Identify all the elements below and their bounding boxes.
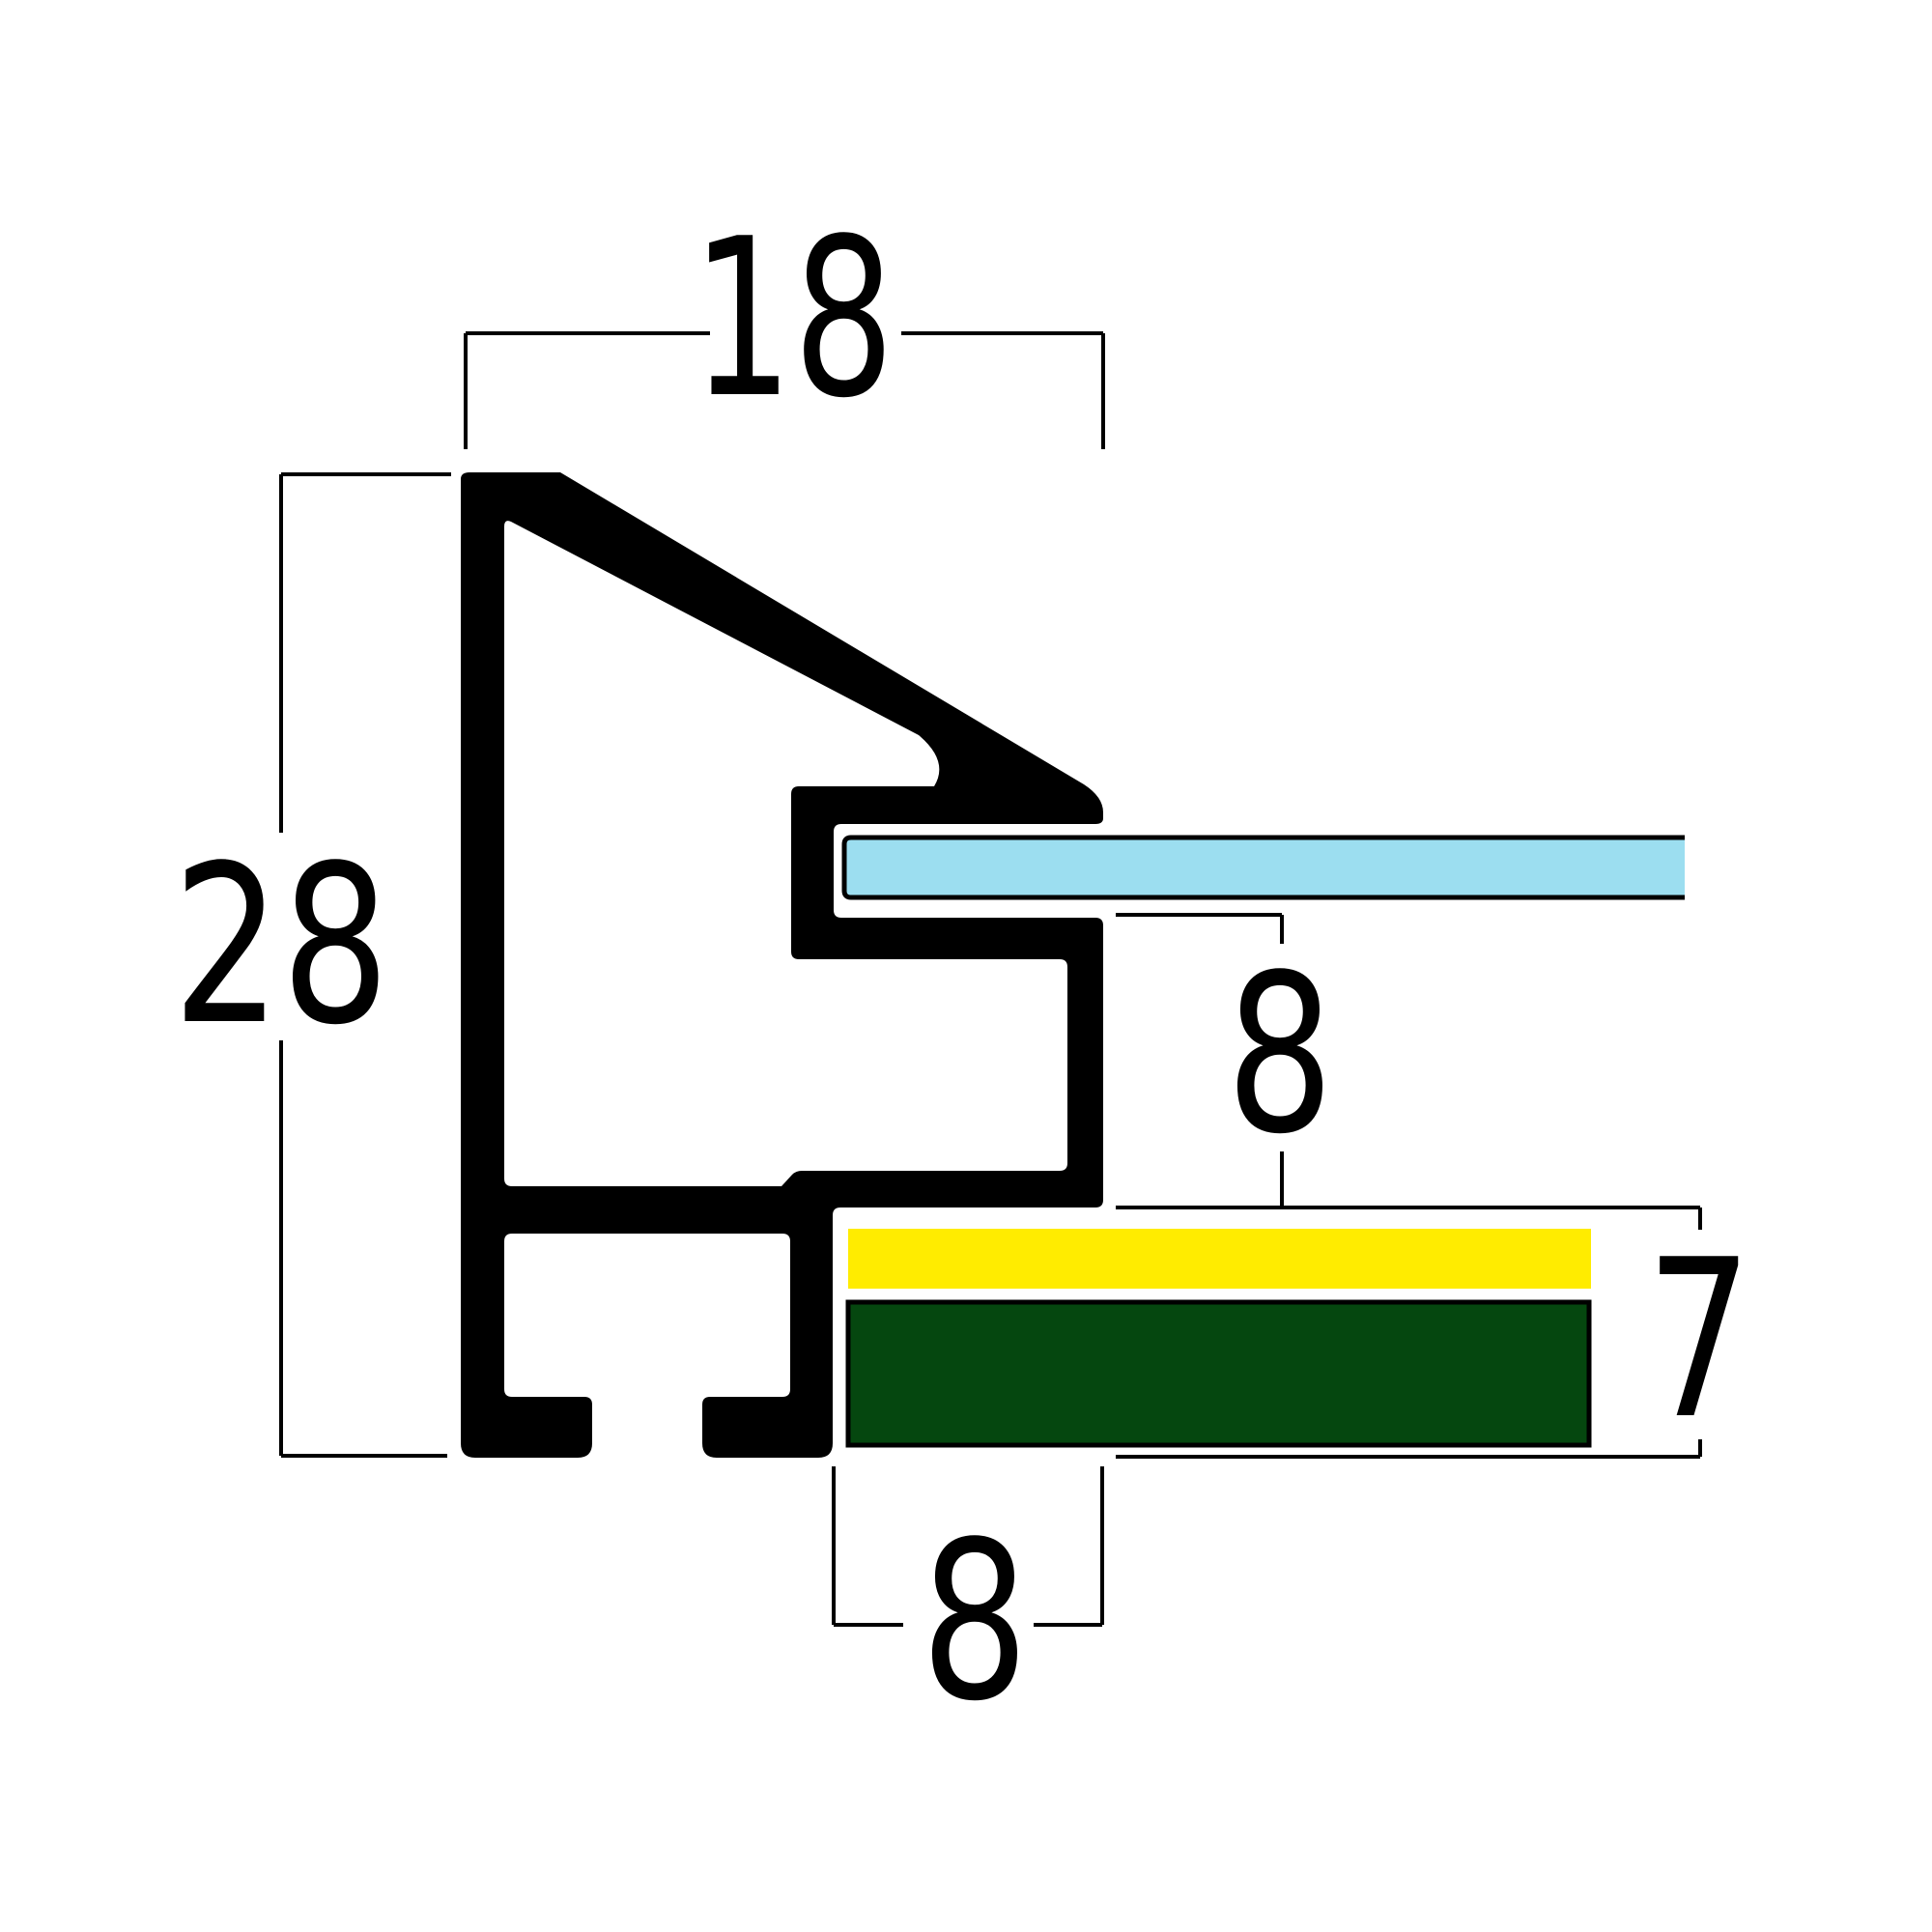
dim-value-stack-thickness: 7 [1646,1213,1752,1467]
diagram-canvas: 18 28 8 7 [0,0,1932,1932]
dim-value-top-width: 18 [692,192,895,446]
mat-layer [848,1229,1591,1289]
dim-value-foot-width: 8 [921,1495,1029,1749]
dim-value-left-height: 28 [173,819,390,1073]
dim-value-rabbet-depth: 8 [1226,928,1334,1182]
dimension-top-width: 18 [466,192,1103,449]
glass-pane [844,838,1685,897]
backing-board [848,1302,1589,1445]
dimension-rabbet-depth: 8 [1116,915,1334,1207]
dimension-left-height: 28 [173,474,452,1456]
dimension-foot-width: 8 [834,1466,1102,1749]
moulding-cross-section-diagram: 18 28 8 7 [0,0,1932,1932]
